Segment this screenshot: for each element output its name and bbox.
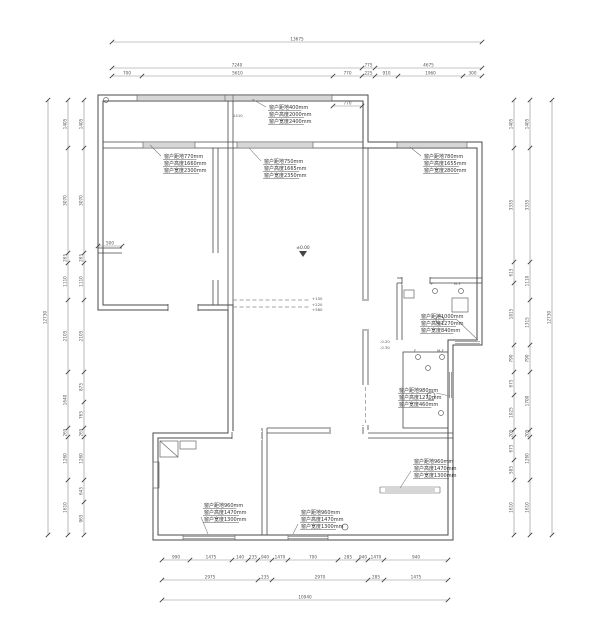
dim-label: 225 — [365, 71, 373, 76]
dim-label: 1025 — [509, 407, 514, 418]
dim-label: 285 — [344, 555, 352, 560]
dim-label: 3335 — [509, 199, 514, 210]
window-annotation-sw-room: 窗户距地960mm窗户高度1470mm窗户宽度1300mm — [203, 502, 247, 523]
dim-label: 5610 — [232, 71, 243, 76]
window-spec-line: 窗户宽度1300mm — [301, 523, 344, 530]
dim-label: 1110 — [525, 275, 530, 286]
window-spec-line: 窗户宽度2400mm — [269, 118, 312, 125]
dim-label: 3070 — [79, 195, 84, 206]
dim-label: 2105 — [79, 330, 84, 341]
dim-chain-bottom-total: 10940 — [160, 595, 450, 603]
level-triangle-icon — [299, 251, 307, 257]
drain-symbol-2 — [439, 411, 444, 416]
floor-step-label: +150 — [312, 296, 323, 301]
window-annotation-s-mid-room: 窗户距地960mm窗户高度1470mm窗户宽度1300mm — [300, 509, 344, 530]
dim-chain-top-total: 13675 — [110, 37, 484, 45]
dim-label: 12730 — [547, 311, 552, 325]
dim-label: 3070 — [63, 195, 68, 206]
dim-label: 615 — [509, 268, 514, 276]
dim-chain-bottom-mid: 297523529702851475 — [160, 575, 450, 583]
fixture-label: M-F — [454, 281, 461, 286]
dim-label: 2975 — [205, 575, 216, 580]
window-spec-line: 窗户宽度2300mm — [164, 167, 207, 174]
cabinet-diagonal — [160, 441, 178, 457]
fixture-symbol-f1 — [433, 289, 438, 294]
dim-chain-left-total: 12730 — [43, 98, 51, 537]
dim-label: 300 — [469, 71, 477, 76]
dim-label: 1470 — [371, 555, 382, 560]
fixture-label: F — [431, 281, 433, 286]
dim-chain-left-mid: 1405307026511102105164026512601610 — [63, 98, 71, 537]
window-spec-line: 窗户高度2000mm — [269, 111, 312, 118]
dim-label: 585 — [509, 466, 514, 474]
window-spec-line: 窗户高度1270mm — [421, 320, 464, 327]
window-annotation-top-outer: 窗户距地400mm窗户高度2000mm窗户宽度2400mm — [268, 104, 312, 125]
floor-plan-page: ±0.00 +150 +220 +380 -0.20 -0.30 F M-F F… — [0, 0, 600, 622]
dim-label: 1815 — [509, 308, 514, 319]
dim-label: 1610 — [525, 502, 530, 513]
dim-label: 675 — [509, 379, 514, 387]
dim-label: 265 — [63, 254, 68, 262]
dim-label: 1475 — [411, 575, 422, 580]
dim-label: 790 — [509, 354, 514, 362]
dim-label: 235 — [249, 555, 257, 560]
dim-label: 1405 — [63, 118, 68, 129]
dim-label: 3335 — [525, 199, 530, 210]
dim-label: 910 — [383, 71, 391, 76]
dim-chain-right-total: 12730 — [547, 98, 555, 537]
dim-label: 1260 — [63, 453, 68, 464]
window-spec-line: 窗户宽度460mm — [399, 401, 438, 408]
appliance-box — [452, 298, 468, 312]
dim-label: 1610 — [63, 502, 68, 513]
dim-label: 990 — [172, 555, 180, 560]
dim-label: 13675 — [290, 37, 304, 42]
window-spec-line: 窗户距地1000mm — [421, 313, 464, 320]
dim-label: 875 — [79, 383, 84, 391]
window-annotation-se-room: 窗户距地960mm窗户高度1470mm窗户宽度1300mm — [413, 458, 457, 479]
dim-label: 1315 — [525, 317, 530, 328]
corridor-level-label: -0.20 — [380, 339, 390, 344]
window-spec-line: 窗户距地770mm — [164, 153, 203, 160]
level-marker: ±0.00 — [296, 245, 310, 257]
dim-label: 940 — [412, 555, 420, 560]
window-spec-line: 窗户距地780mm — [424, 153, 463, 160]
window-spec-line: 窗户高度1470mm — [414, 465, 457, 472]
dim-label: 700 — [123, 71, 131, 76]
fixture-label: M-F — [437, 348, 444, 353]
balcony-drain — [104, 98, 109, 103]
dim-label: 12730 — [43, 311, 48, 325]
dim-label: 7240 — [232, 63, 243, 68]
corridor-level-label: -0.30 — [380, 345, 390, 350]
window-spec-line: 窗户距地400mm — [269, 104, 308, 111]
dim-label: 940 — [359, 555, 367, 560]
shelf-unit — [180, 441, 196, 449]
window-spec-line: 窗户宽度2800mm — [424, 167, 467, 174]
window-spec-line: 窗户距地960mm — [414, 458, 453, 465]
dim-label: 770 — [344, 71, 352, 76]
floor-step-label: +380 — [312, 307, 323, 312]
dim-chain-inner-770: 770 — [331, 101, 364, 109]
window-spec-line: 窗户距地750mm — [264, 158, 303, 165]
window-spec-line: 窗户高度1665mm — [264, 165, 307, 172]
dim-label: 1405 — [525, 118, 530, 129]
dim-label: 1640 — [63, 394, 68, 405]
dim-label: 205 — [509, 429, 514, 437]
dim-label: 1405 — [79, 118, 84, 129]
dim-label: 140 — [236, 555, 244, 560]
dim-label: 790 — [525, 354, 530, 362]
dim-label: 285 — [372, 575, 380, 580]
fixture-symbol-f4 — [440, 355, 445, 360]
dim-label: 675 — [509, 444, 514, 452]
floor-step-dashed-lines — [233, 300, 366, 423]
dim-chain-inner-500: 500 — [96, 241, 124, 249]
dim-label: 265 — [79, 254, 84, 262]
dim-label: 1110 — [79, 276, 84, 287]
door-jambs — [168, 277, 430, 439]
dim-label: 1405 — [509, 118, 514, 129]
dim-label: 1110 — [63, 276, 68, 287]
window-annotation-nw-room: 窗户距地770mm窗户高度1660mm窗户宽度2300mm — [163, 153, 207, 174]
dim-label: 500 — [106, 241, 114, 246]
dim-chain-right-detail: 14053335615181579067510252056755851610 — [509, 98, 517, 537]
drain-symbol-1 — [426, 366, 431, 371]
window-spec-line: 窗户宽度840mm — [421, 327, 460, 334]
window-spec-line: 窗户宽度1300mm — [414, 472, 457, 479]
inner-dim-label: 2410 — [233, 113, 243, 118]
dim-label: 10940 — [298, 595, 312, 600]
level-value: ±0.00 — [296, 245, 310, 251]
window-annotation-ne-room: 窗户距地780mm窗户高度1655mm窗户宽度2800mm — [423, 153, 467, 174]
dim-label: 645 — [79, 487, 84, 495]
dim-label: 770 — [344, 101, 352, 106]
dim-label: 775 — [365, 63, 373, 68]
window-annotation-east-upper: 窗户距地1000mm窗户高度1270mm窗户宽度840mm — [420, 313, 464, 334]
dim-label: 1470 — [275, 555, 286, 560]
window-spec-line: 窗户距地960mm — [301, 509, 340, 516]
window-spec-line: 窗户距地960mm — [204, 502, 243, 509]
window-spec-line: 窗户高度1655mm — [424, 160, 467, 167]
window-spec-line: 窗户宽度1300mm — [204, 516, 247, 523]
dim-chain-top-detail: 70056107702259101960300 — [110, 71, 484, 79]
window-annotation-east-lower: 窗户距地980mm窗户高度1270mm窗户宽度460mm — [398, 387, 442, 408]
dim-label: 1700 — [525, 395, 530, 406]
dim-label: 1610 — [509, 502, 514, 513]
dim-chain-top-mid: 72407754675 — [110, 63, 484, 71]
dim-label: 2970 — [315, 575, 326, 580]
dim-label: 1475 — [206, 555, 217, 560]
dim-chain-right-mid: 1405333511101315790170020512601610 — [525, 98, 533, 537]
dim-label: 765 — [79, 411, 84, 419]
dim-label: 1960 — [425, 71, 436, 76]
window-annotation-mid-room: 窗户距地750mm窗户高度1665mm窗户宽度2350mm — [263, 158, 307, 179]
dim-label: 205 — [525, 429, 530, 437]
dim-label: 1260 — [525, 453, 530, 464]
dim-label: 2105 — [63, 330, 68, 341]
dim-chain-left-detail: 14053070265111021058757652651260645965 — [79, 98, 87, 537]
fixture-symbol-f2 — [459, 289, 464, 294]
window-spec-line: 窗户距地980mm — [399, 387, 438, 394]
dim-label: 965 — [79, 514, 84, 522]
dim-label: 235 — [261, 575, 269, 580]
window-spec-line: 窗户宽度2350mm — [264, 172, 307, 179]
window-spec-line: 窗户高度1270mm — [399, 394, 442, 401]
window-spec-line: 窗户高度1470mm — [204, 509, 247, 516]
dim-label: 940 — [261, 555, 269, 560]
dim-label: 1260 — [79, 453, 84, 464]
dim-label: 4675 — [423, 63, 434, 68]
dim-chain-bottom-detail: 990147514023594014707002859401470940 — [160, 555, 450, 563]
dim-label: 265 — [79, 428, 84, 436]
small-cabinet — [404, 290, 414, 298]
dim-label: 265 — [63, 428, 68, 436]
window-spec-line: 窗户高度1660mm — [164, 160, 207, 167]
dim-label: 700 — [309, 555, 317, 560]
floor-plan-canvas: ±0.00 +150 +220 +380 -0.20 -0.30 F M-F F… — [0, 0, 600, 622]
window-spec-line: 窗户高度1470mm — [301, 516, 344, 523]
fixture-label: F — [414, 348, 416, 353]
fixture-symbol-f3 — [416, 355, 421, 360]
door-openings — [168, 276, 430, 440]
